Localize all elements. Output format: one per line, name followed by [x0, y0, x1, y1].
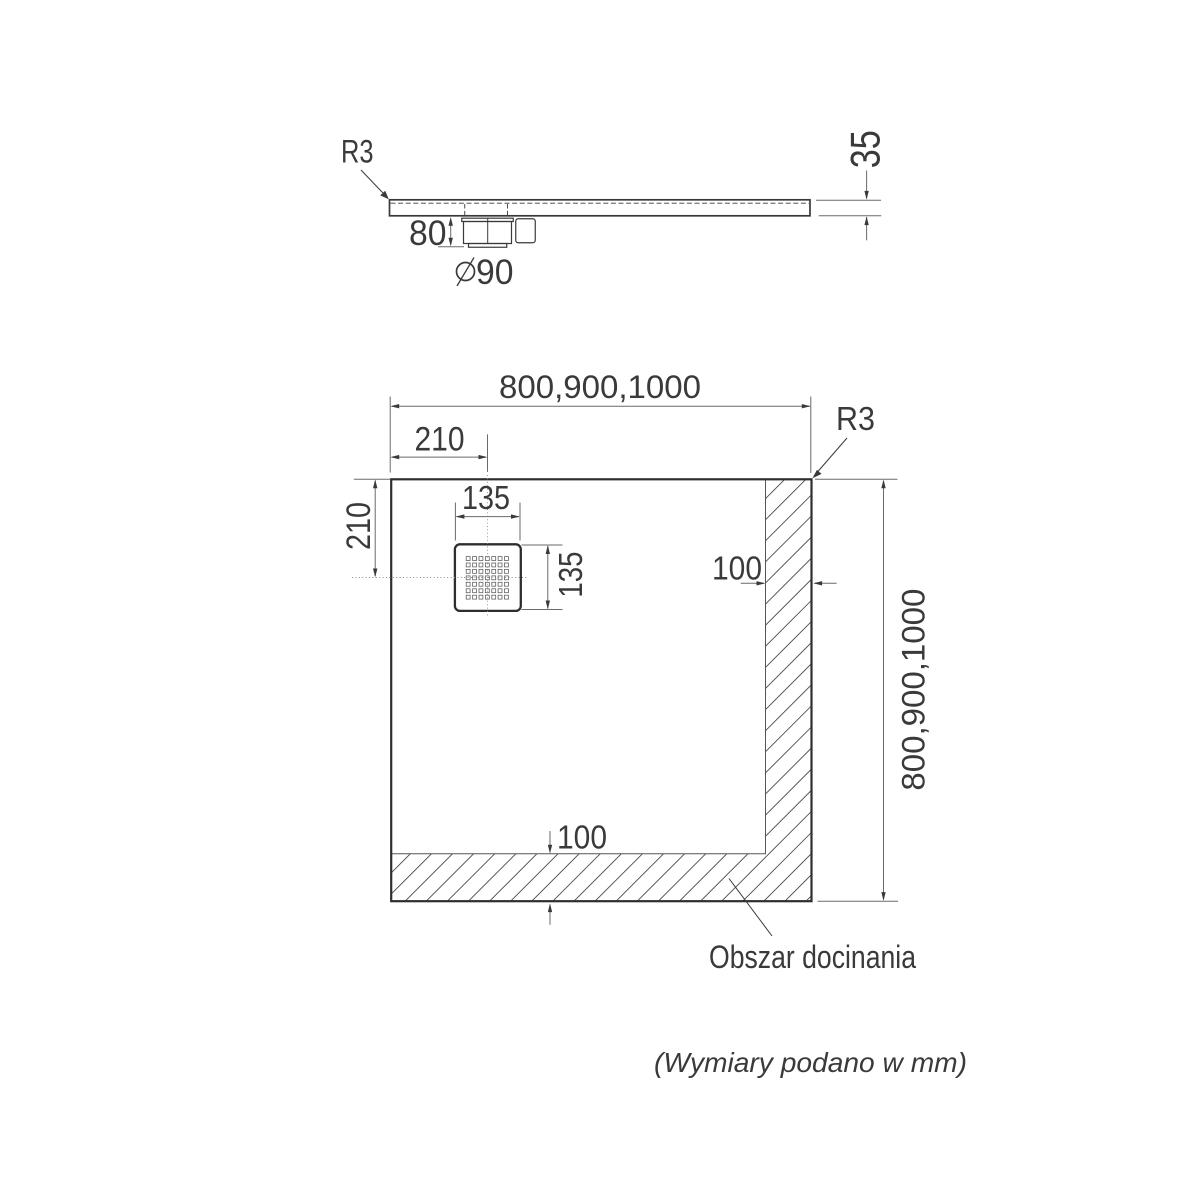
svg-text:100: 100	[557, 820, 607, 857]
svg-text:800,900,1000: 800,900,1000	[499, 368, 701, 405]
svg-text:210: 210	[340, 502, 378, 550]
svg-text:Obszar docinania: Obszar docinania	[709, 939, 916, 975]
svg-text:210: 210	[415, 421, 465, 459]
svg-text:800,900,1000: 800,900,1000	[895, 589, 932, 791]
svg-text:(Wymiary podano w mm): (Wymiary podano w mm)	[654, 1047, 967, 1078]
svg-text:R3: R3	[836, 400, 875, 437]
svg-text:35: 35	[842, 130, 889, 168]
svg-text:100: 100	[712, 550, 762, 587]
svg-text:135: 135	[552, 552, 589, 598]
svg-text:80: 80	[409, 214, 447, 253]
svg-text:135: 135	[462, 479, 510, 516]
svg-text:R3: R3	[341, 133, 374, 169]
svg-text:90: 90	[476, 253, 514, 292]
